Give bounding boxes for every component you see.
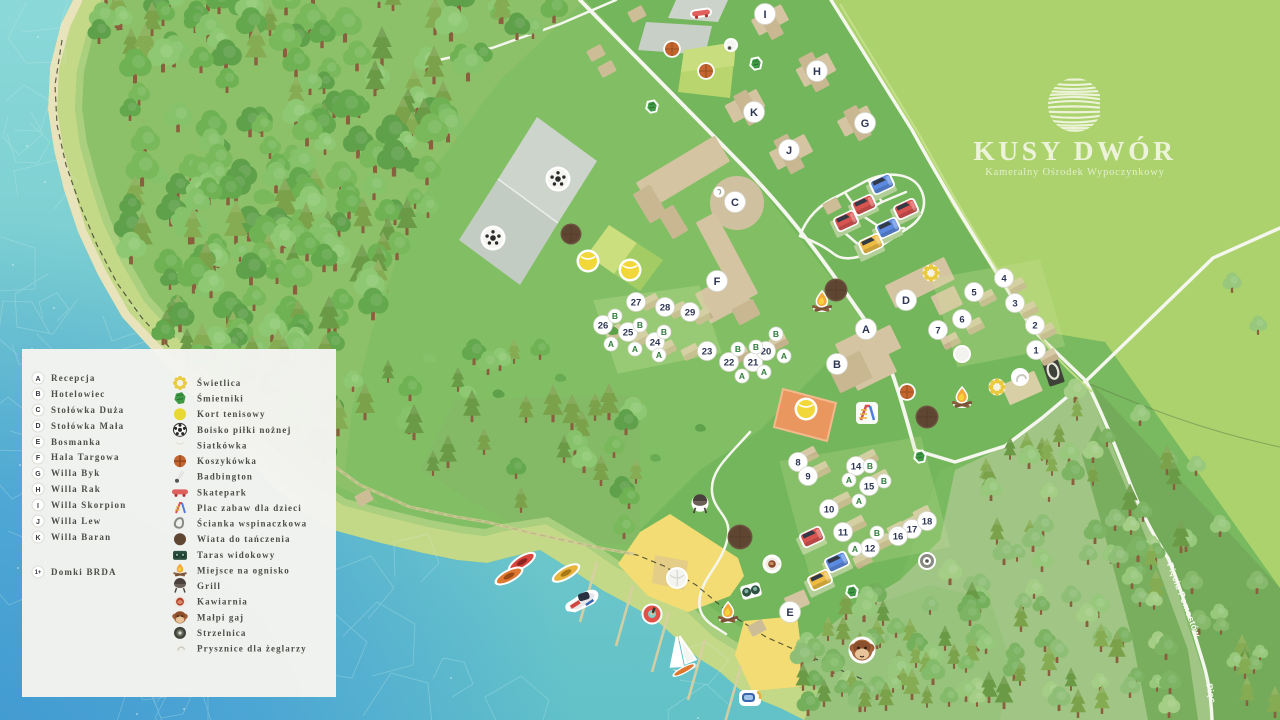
svg-text:A: A [656,350,662,360]
svg-text:8: 8 [795,457,800,468]
svg-text:15: 15 [864,481,875,492]
svg-text:B: B [881,476,887,486]
svg-text:F: F [714,276,721,288]
svg-text:Badbington: Badbington [197,472,253,482]
svg-text:H: H [35,487,40,494]
svg-text:Willa Skorpion: Willa Skorpion [51,500,126,510]
svg-text:Kawiarnia: Kawiarnia [197,597,248,607]
svg-text:Świetlica: Świetlica [197,378,241,388]
svg-text:A: A [761,367,767,377]
svg-text:29: 29 [685,307,696,318]
svg-text:Plac zabaw dla dzieci: Plac zabaw dla dzieci [197,503,302,513]
svg-text:Strzelnica: Strzelnica [197,628,247,638]
svg-text:18: 18 [922,516,933,527]
svg-text:Kameralny Ośrodek Wypoczynkowy: Kameralny Ośrodek Wypoczynkowy [985,167,1164,178]
svg-text:F: F [36,455,41,462]
svg-text:B: B [874,528,880,538]
svg-text:B: B [753,342,759,352]
svg-text:B: B [735,344,741,354]
svg-text:Willa Byk: Willa Byk [51,468,100,478]
svg-text:H: H [813,66,821,78]
svg-text:G: G [861,118,870,130]
svg-text:11: 11 [838,527,849,538]
svg-text:J: J [36,519,40,526]
svg-text:Stołówka Mała: Stołówka Mała [51,421,124,431]
svg-text:Siatkówka: Siatkówka [197,441,247,451]
svg-text:B: B [661,327,667,337]
svg-text:Taras widokowy: Taras widokowy [197,550,275,560]
svg-text:A: A [852,544,858,554]
svg-text:Koszykówka: Koszykówka [197,456,257,466]
svg-text:Willa Baran: Willa Baran [51,532,111,542]
svg-text:B: B [833,359,841,371]
svg-text:9: 9 [805,471,810,482]
svg-text:I: I [37,503,39,510]
svg-text:Prysznice dla żeglarzy: Prysznice dla żeglarzy [197,644,307,654]
svg-text:3: 3 [1012,298,1017,309]
svg-text:A: A [781,351,787,361]
svg-text:27: 27 [631,297,642,308]
svg-text:21: 21 [748,357,759,368]
svg-text:12: 12 [865,543,876,554]
svg-text:25: 25 [623,327,634,338]
svg-text:A: A [632,344,638,354]
svg-text:Domki BRDA: Domki BRDA [51,567,117,577]
svg-text:C: C [731,197,739,209]
svg-text:Willa Rak: Willa Rak [51,484,101,494]
svg-text:Miejsce na ognisko: Miejsce na ognisko [197,565,290,575]
svg-text:Hotelowiec: Hotelowiec [51,389,105,399]
svg-text:E: E [786,607,793,619]
svg-text:A: A [739,371,745,381]
svg-text:A: A [862,324,870,336]
svg-text:16: 16 [893,531,904,542]
svg-text:B: B [35,391,40,398]
svg-text:Śmietniki: Śmietniki [197,394,244,404]
svg-text:28: 28 [660,302,671,313]
svg-text:Boisko piłki nożnej: Boisko piłki nożnej [197,425,291,435]
svg-text:Stołówka Duża: Stołówka Duża [51,405,124,415]
svg-text:5: 5 [971,287,977,298]
svg-text:C: C [35,407,40,414]
svg-text:1+: 1+ [35,570,42,576]
svg-text:7: 7 [935,325,940,336]
svg-text:Hala Targowa: Hala Targowa [51,452,120,462]
svg-text:KUSY DWÓR: KUSY DWÓR [973,135,1176,166]
svg-text:26: 26 [598,320,609,331]
svg-text:17: 17 [907,524,918,535]
svg-text:A: A [608,339,614,349]
svg-text:Grill: Grill [197,581,221,591]
svg-text:1: 1 [1033,345,1039,356]
svg-text:A: A [35,376,40,383]
svg-text:A: A [846,475,852,485]
svg-text:B: B [612,311,618,321]
svg-text:4: 4 [1001,273,1007,284]
svg-text:Willa Lew: Willa Lew [51,516,101,526]
svg-text:Małpi gaj: Małpi gaj [197,612,244,622]
svg-text:Kort tenisowy: Kort tenisowy [197,409,266,419]
svg-text:6: 6 [959,314,964,325]
svg-text:D: D [902,295,910,307]
svg-text:B: B [637,320,643,330]
svg-text:23: 23 [702,346,713,357]
svg-text:B: B [867,461,873,471]
svg-text:K: K [35,535,40,542]
svg-text:K: K [750,107,758,119]
svg-text:A: A [856,496,862,506]
svg-text:E: E [36,439,41,446]
svg-text:10: 10 [824,504,835,515]
svg-text:Skatepark: Skatepark [197,487,247,497]
svg-text:Recepcja: Recepcja [51,373,96,383]
svg-text:22: 22 [724,357,735,368]
svg-text:24: 24 [650,337,661,348]
svg-text:D: D [35,423,40,430]
svg-text:Wiata do tańczenia: Wiata do tańczenia [197,534,291,544]
svg-text:J: J [786,145,792,157]
svg-text:Ścianka wspinaczkowa: Ścianka wspinaczkowa [197,519,307,529]
svg-text:Bosmanka: Bosmanka [51,437,101,447]
svg-text:I: I [763,9,766,21]
svg-text:B: B [773,329,779,339]
svg-text:14: 14 [851,461,862,472]
svg-text:2: 2 [1032,320,1037,331]
svg-text:G: G [35,471,41,478]
